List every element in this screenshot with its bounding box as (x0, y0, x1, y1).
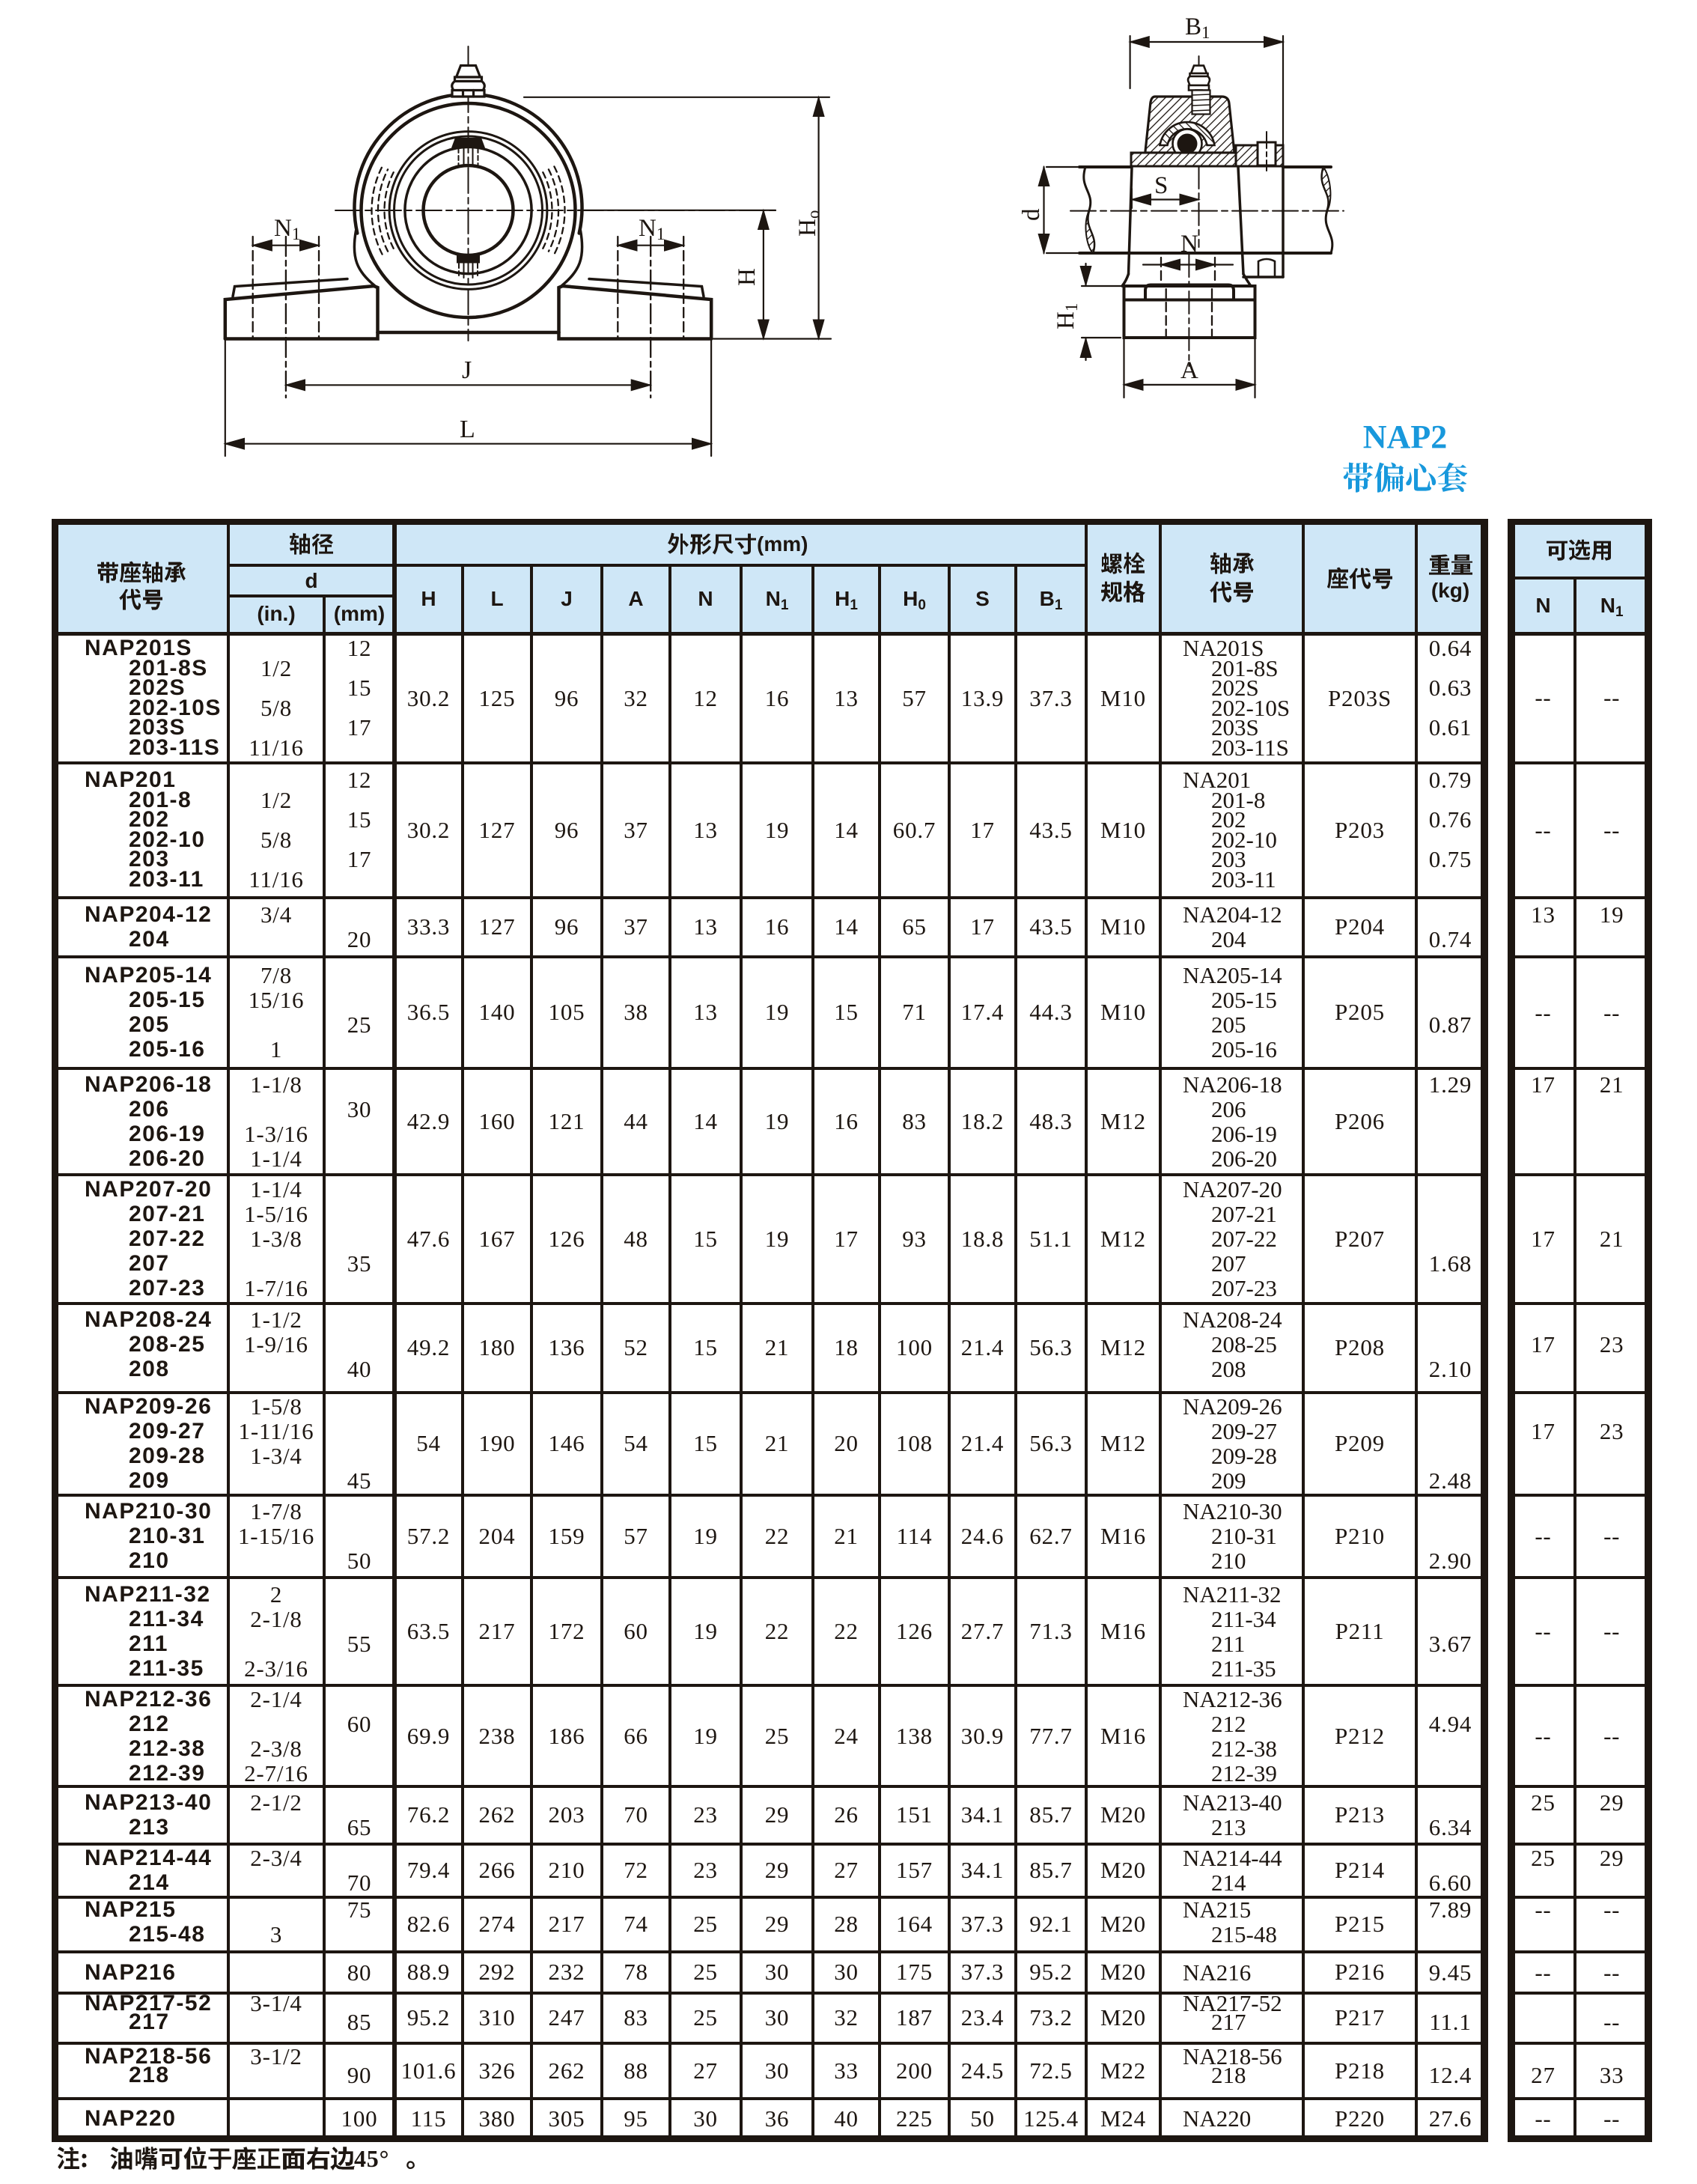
svg-text:B1: B1 (1185, 13, 1210, 42)
svg-text:N: N (1180, 231, 1198, 258)
svg-text:H: H (734, 268, 761, 286)
svg-text:S: S (1154, 172, 1168, 199)
svg-text:N1: N1 (274, 215, 300, 243)
svg-text:N1: N1 (639, 215, 665, 243)
svg-text:Ho: Ho (794, 210, 823, 237)
svg-text:A: A (1180, 357, 1198, 384)
svg-text:H1: H1 (1052, 303, 1081, 329)
svg-text:J: J (462, 356, 472, 384)
svg-text:d: d (1018, 208, 1045, 221)
svg-text:L: L (460, 416, 475, 443)
